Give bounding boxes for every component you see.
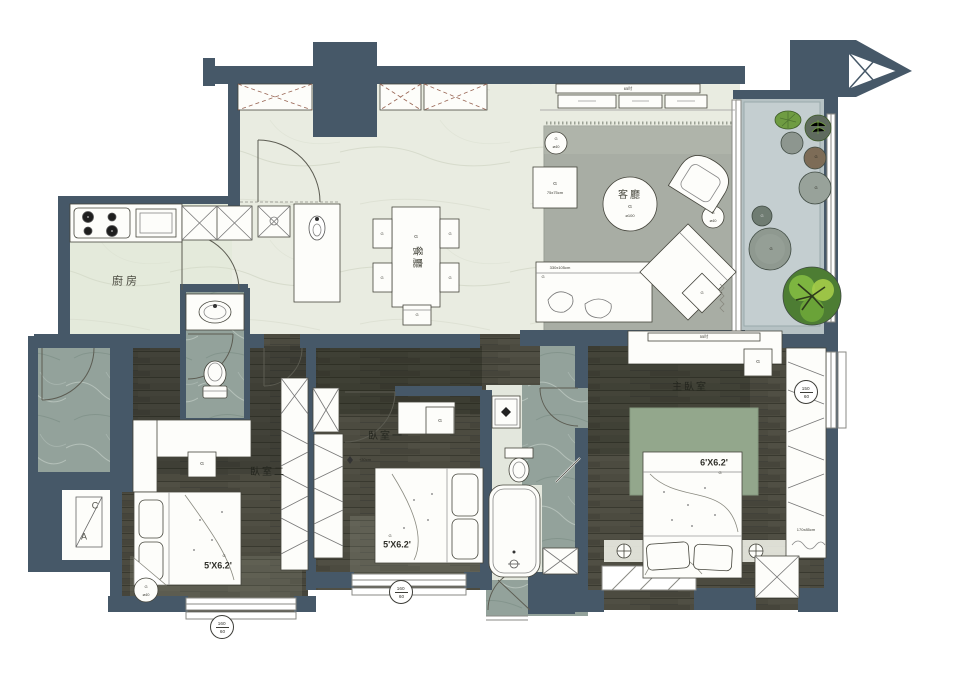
wall-segment <box>575 346 588 388</box>
tv-size-label: 55吋 <box>700 335 708 339</box>
wall-segment <box>528 572 575 614</box>
wall-segment <box>300 334 480 348</box>
wall-segment <box>588 590 604 612</box>
g-tag: G <box>380 232 383 236</box>
g-tag: G <box>541 275 544 279</box>
g-tag: G <box>414 235 418 240</box>
wall-segment <box>798 588 838 612</box>
media-cabinet <box>665 95 707 108</box>
g-tag: G <box>554 137 557 141</box>
g-tag: G <box>448 276 451 280</box>
kitchen-label: 廚房 <box>112 277 140 288</box>
g-tag: G <box>144 585 147 589</box>
master-label: 主臥室 <box>672 383 708 393</box>
wall-segment <box>244 288 250 424</box>
ac-unit <box>62 490 110 560</box>
wall-segment <box>395 386 482 396</box>
dim-bottom: 60 <box>398 595 403 598</box>
floor-left-duct <box>34 340 120 480</box>
wall-segment <box>58 196 70 346</box>
wall-segment <box>34 490 62 566</box>
ac-label-c: C <box>92 502 99 511</box>
sofa-dim: 330x105cm <box>550 266 571 270</box>
window-dim-circle: 150 60 <box>794 380 818 404</box>
g-tag: G <box>769 247 772 251</box>
g-tag: G <box>711 211 714 215</box>
wall-segment <box>58 196 235 204</box>
side-table-dim: 75x75cm <box>547 191 563 195</box>
g-tag: G <box>200 462 204 467</box>
window-dim-circle: 160 60 <box>389 580 413 604</box>
tv-size-label: 65吋 <box>624 87 632 91</box>
toilet-tank <box>505 448 533 458</box>
closet-note: +30cm <box>359 458 371 462</box>
dim-top: 160 <box>218 622 226 625</box>
wall-segment <box>110 492 122 612</box>
wall-segment <box>464 572 492 588</box>
wardrobe-dim: 170x85cm <box>797 528 815 532</box>
media-cabinet <box>558 95 616 108</box>
wall-segment <box>248 334 264 348</box>
ac-label-a: A <box>81 533 87 542</box>
g-tag: G <box>380 276 383 280</box>
stool <box>545 132 567 154</box>
g-tag: G <box>448 232 451 236</box>
pillow <box>139 500 163 538</box>
window-dim-circle: 160 60 <box>210 615 234 639</box>
kitchen-counter <box>70 204 182 242</box>
bedroom-mid-label: 臥室一 <box>368 432 404 442</box>
bedroom-left-label: 臥室二 <box>250 468 286 478</box>
g-tag: G <box>814 186 817 190</box>
wall-segment <box>306 572 354 588</box>
wall-segment <box>377 66 745 84</box>
media-cabinet <box>619 95 662 108</box>
wall-segment <box>180 284 248 292</box>
toilet <box>204 361 226 387</box>
living-label: 客廳 <box>618 191 642 201</box>
kitchen-cabinets <box>182 206 290 240</box>
stool-dim: ⌀40 <box>710 219 717 223</box>
g-tag: G <box>700 291 703 295</box>
plant <box>775 111 801 129</box>
stool-dim: ⌀40 <box>143 593 150 597</box>
g-tag: G <box>438 419 442 424</box>
side-table <box>533 167 577 208</box>
g-tag: G <box>222 554 225 558</box>
floor-plan-drawing <box>0 0 960 676</box>
dim-bottom: 60 <box>219 630 224 633</box>
floor-plan: 廚房 餐廳 G G G G G G 客廳 G ⌀100 G 75x75cm G … <box>0 0 960 676</box>
dim-bottom: 60 <box>803 395 808 398</box>
stool-dim: ⌀40 <box>553 145 560 149</box>
g-tag: G <box>415 313 418 317</box>
wall-segment <box>313 42 377 137</box>
wall-segment <box>180 284 186 424</box>
window-sill <box>186 612 296 619</box>
wall-segment <box>34 334 183 348</box>
pillow <box>452 519 478 559</box>
pillow <box>646 542 690 571</box>
g-tag: G <box>628 205 632 210</box>
stove <box>74 208 130 238</box>
g-tag: G <box>814 155 817 159</box>
bed-dim: 5'X6.2' <box>383 541 411 550</box>
g-tag: G <box>760 214 763 218</box>
wall-segment <box>34 472 118 490</box>
dining-label: 餐廳 <box>411 246 421 270</box>
bathtub <box>489 485 540 577</box>
g-tag: G <box>553 182 557 187</box>
wall-segment <box>28 560 118 572</box>
g-tag: G <box>388 534 391 538</box>
wall-segment <box>294 596 316 612</box>
stool <box>134 578 158 602</box>
coffee-table-dim: ⌀100 <box>625 214 634 218</box>
wall-segment <box>575 428 588 612</box>
wall-segment <box>110 346 133 492</box>
wall-segment <box>733 90 836 99</box>
g-tag: G <box>756 360 760 365</box>
tree <box>783 267 841 325</box>
g-tag: G <box>718 471 721 475</box>
bed-dim: 5'X6.2' <box>204 562 232 571</box>
sofa <box>536 262 652 322</box>
pillow <box>452 474 478 516</box>
potted-plant <box>805 115 831 141</box>
pillow <box>693 544 732 571</box>
stone <box>781 132 803 154</box>
master-bed-dim: 6'X6.2' <box>700 459 728 468</box>
wall-segment <box>694 588 756 610</box>
dim-top: 160 <box>397 587 405 590</box>
dim-top: 150 <box>802 387 810 390</box>
window-sill <box>838 352 846 428</box>
